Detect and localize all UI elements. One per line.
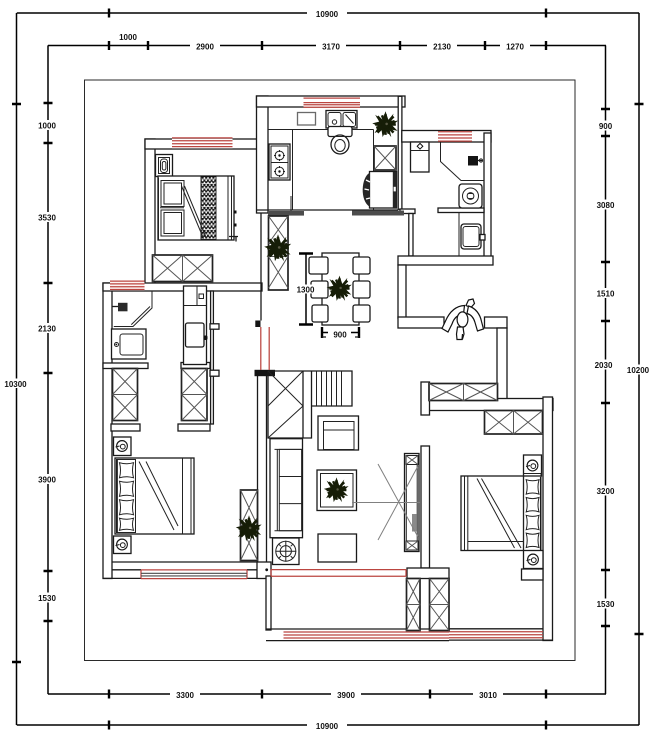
svg-text:3080: 3080 — [597, 201, 615, 210]
svg-text:1000: 1000 — [119, 33, 137, 42]
svg-text:2130: 2130 — [38, 325, 56, 334]
svg-text:3200: 3200 — [597, 487, 615, 496]
svg-text:900: 900 — [333, 331, 347, 340]
svg-text:1270: 1270 — [506, 42, 524, 51]
svg-text:10300: 10300 — [4, 380, 27, 389]
svg-text:10200: 10200 — [627, 366, 650, 375]
svg-text:900: 900 — [599, 122, 613, 131]
svg-text:1000: 1000 — [38, 122, 56, 131]
svg-text:1510: 1510 — [597, 290, 615, 299]
svg-text:3900: 3900 — [38, 476, 56, 485]
svg-text:2030: 2030 — [595, 361, 613, 370]
svg-text:3010: 3010 — [479, 691, 497, 700]
svg-text:2900: 2900 — [196, 42, 214, 51]
svg-text:3170: 3170 — [322, 42, 340, 51]
svg-text:3300: 3300 — [176, 691, 194, 700]
svg-text:10900: 10900 — [316, 722, 339, 731]
svg-text:2130: 2130 — [433, 42, 451, 51]
svg-text:10900: 10900 — [316, 10, 339, 19]
svg-text:1530: 1530 — [38, 594, 56, 603]
svg-text:3900: 3900 — [337, 691, 355, 700]
svg-text:1530: 1530 — [597, 600, 615, 609]
svg-text:3530: 3530 — [38, 214, 56, 223]
svg-text:1300: 1300 — [297, 286, 315, 295]
